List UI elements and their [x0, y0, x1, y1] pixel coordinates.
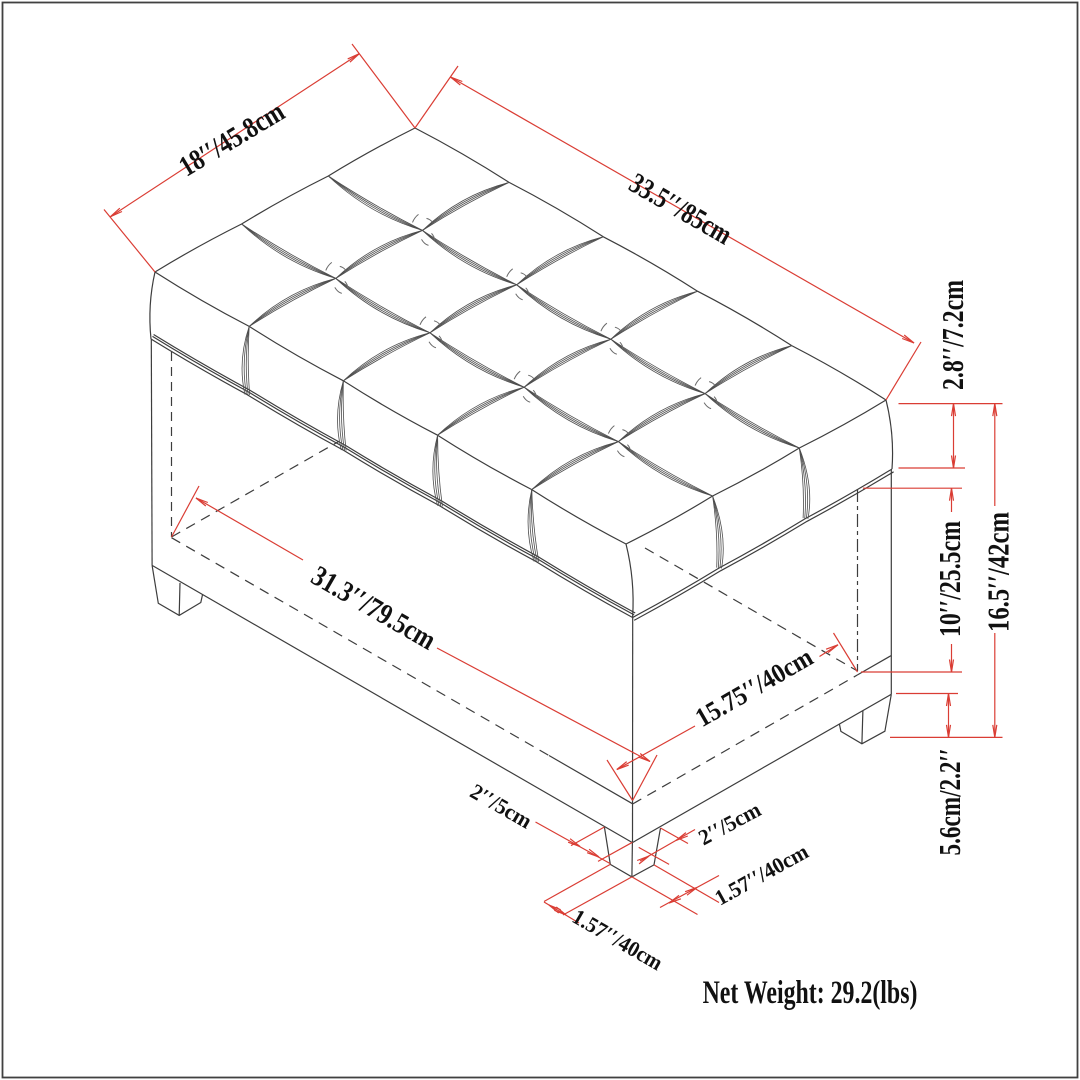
svg-text:5.6cm/2.2′′: 5.6cm/2.2′′ — [933, 748, 967, 855]
svg-text:10′′/25.5cm: 10′′/25.5cm — [932, 521, 967, 637]
svg-text:Net Weight: 29.2(lbs): Net Weight: 29.2(lbs) — [703, 974, 918, 1011]
svg-text:2.8′′/7.2cm: 2.8′′/7.2cm — [935, 280, 970, 390]
svg-text:16.5′′/42cm: 16.5′′/42cm — [982, 512, 1016, 632]
